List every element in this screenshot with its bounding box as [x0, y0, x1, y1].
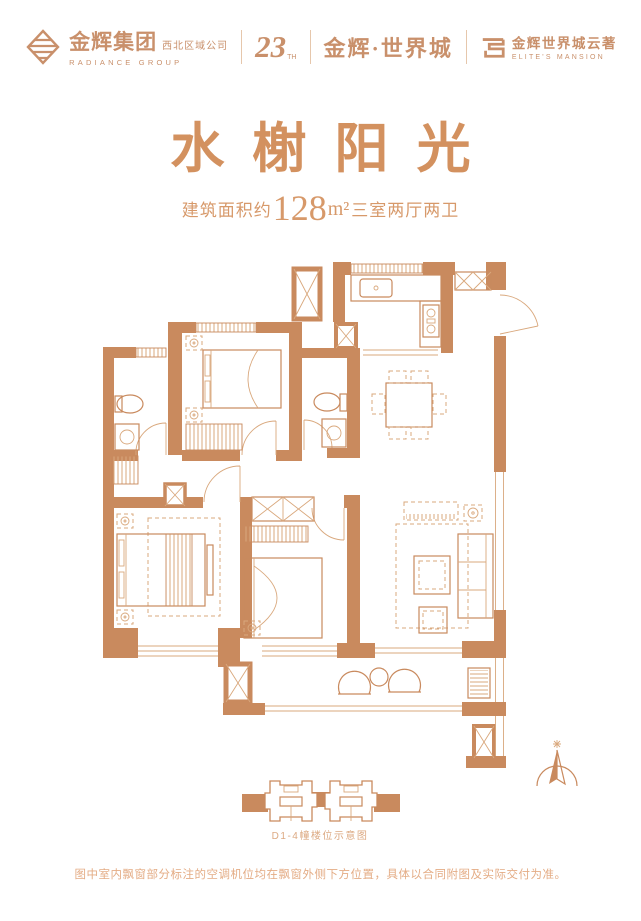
subbrand-name-cn: 金辉世界城云著	[512, 32, 617, 52]
kitchen-sink	[360, 279, 392, 297]
area-value: 128	[273, 188, 327, 228]
ac-unit-icon	[186, 408, 202, 422]
sink	[115, 424, 139, 450]
subbrand-logo: 金辉世界城云著 ELITE'S MANSION	[480, 32, 617, 61]
bed	[203, 350, 281, 408]
master-bedroom	[117, 514, 220, 624]
area-label: 建筑面积约	[182, 201, 272, 220]
shelf	[244, 526, 308, 542]
dining-area	[372, 371, 446, 439]
location-caption: D1-4幢楼位示意图	[225, 827, 415, 842]
ac-unit-icon	[186, 336, 202, 350]
lounge-chair	[388, 669, 421, 692]
radiance-group-logo: 金辉集团 西北区域公司 RADIANCE GROUP	[24, 26, 228, 67]
anniversary-suffix: TH	[287, 54, 296, 61]
bathroom-1	[110, 395, 143, 484]
living-room	[396, 502, 493, 633]
entry-cabinet	[455, 272, 491, 290]
project-name: 金辉·世界城	[324, 31, 453, 63]
anniversary-number: 23	[255, 33, 286, 61]
header-divider	[310, 30, 311, 64]
bathroom-2	[314, 393, 347, 447]
dining-table	[386, 383, 432, 427]
area-info: 建筑面积约128m²三室两厅两卫	[0, 196, 641, 221]
balcony-table	[370, 668, 388, 686]
lounge-chair	[338, 671, 371, 694]
sink	[322, 419, 346, 447]
bedroom-3	[244, 497, 322, 638]
group-name-cn: 金辉集团	[69, 26, 157, 56]
area-unit: m²	[328, 198, 350, 220]
bedroom-2	[186, 336, 281, 450]
group-region: 西北区域公司	[162, 37, 228, 52]
floor-plan: .w{fill:#c98a5e;} .ln{fill:none;stroke:#…	[95, 255, 587, 855]
wardrobe	[186, 424, 242, 450]
sofa	[458, 534, 493, 618]
radiance-diamond-icon	[24, 27, 62, 67]
rug	[396, 524, 468, 628]
group-name-en: RADIANCE GROUP	[69, 58, 228, 67]
subbrand-name-en: ELITE'S MANSION	[512, 54, 617, 61]
page-title: 水榭阳光	[0, 104, 641, 183]
stove	[423, 305, 439, 337]
bench	[207, 545, 213, 595]
header-divider	[241, 30, 242, 64]
balcony	[338, 668, 490, 698]
ac-unit-icon	[464, 505, 482, 521]
anniversary-23-logo: 23 TH	[255, 33, 296, 61]
compass-north-icon	[537, 740, 577, 786]
laundry-cabinet	[110, 456, 138, 484]
header: 金辉集团 西北区域公司 RADIANCE GROUP 23 TH 金辉·世界城 …	[0, 26, 641, 67]
building-location-diagram	[242, 781, 400, 821]
toilet	[117, 395, 143, 413]
ac-unit-icon	[117, 610, 133, 624]
rooms-label: 三室两厅两卫	[351, 201, 459, 220]
header-divider	[466, 30, 467, 64]
cloud-mark-icon	[480, 34, 506, 60]
disclaimer-text: 图中室内飘窗部分标注的空调机位均在飘窗外侧下方位置，具体以合同附图及实际交付为准…	[0, 866, 641, 882]
ac-unit-icon	[117, 514, 133, 528]
poster-page: 金辉集团 西北区域公司 RADIANCE GROUP 23 TH 金辉·世界城 …	[0, 0, 641, 921]
kitchen	[351, 275, 441, 347]
toilet	[314, 393, 340, 411]
